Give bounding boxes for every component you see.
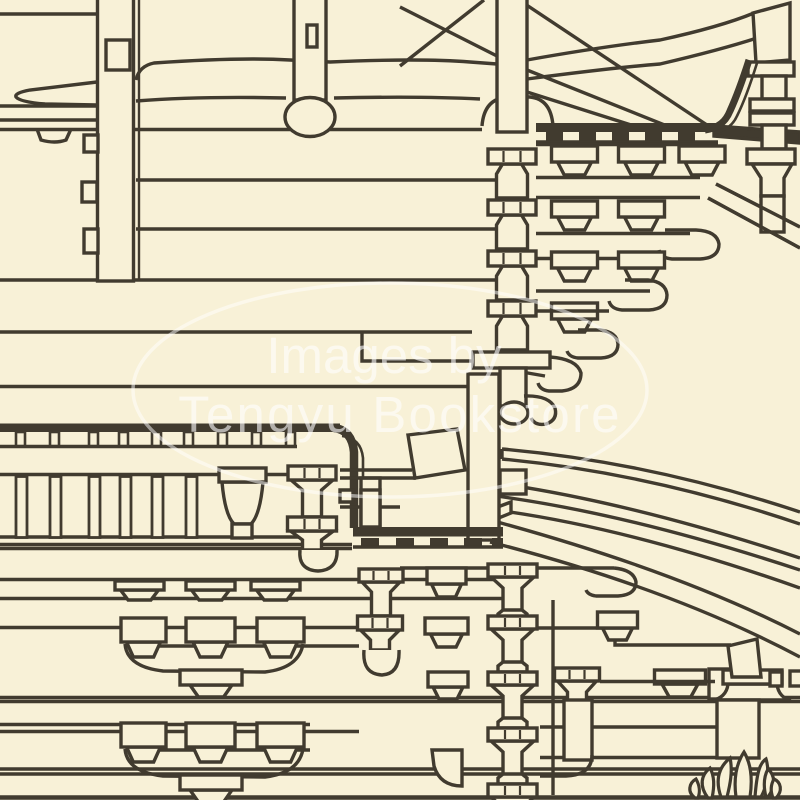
svg-text:Images by: Images by: [266, 327, 502, 384]
svg-text:Tengyu Bookstore: Tengyu Bookstore: [178, 386, 621, 443]
